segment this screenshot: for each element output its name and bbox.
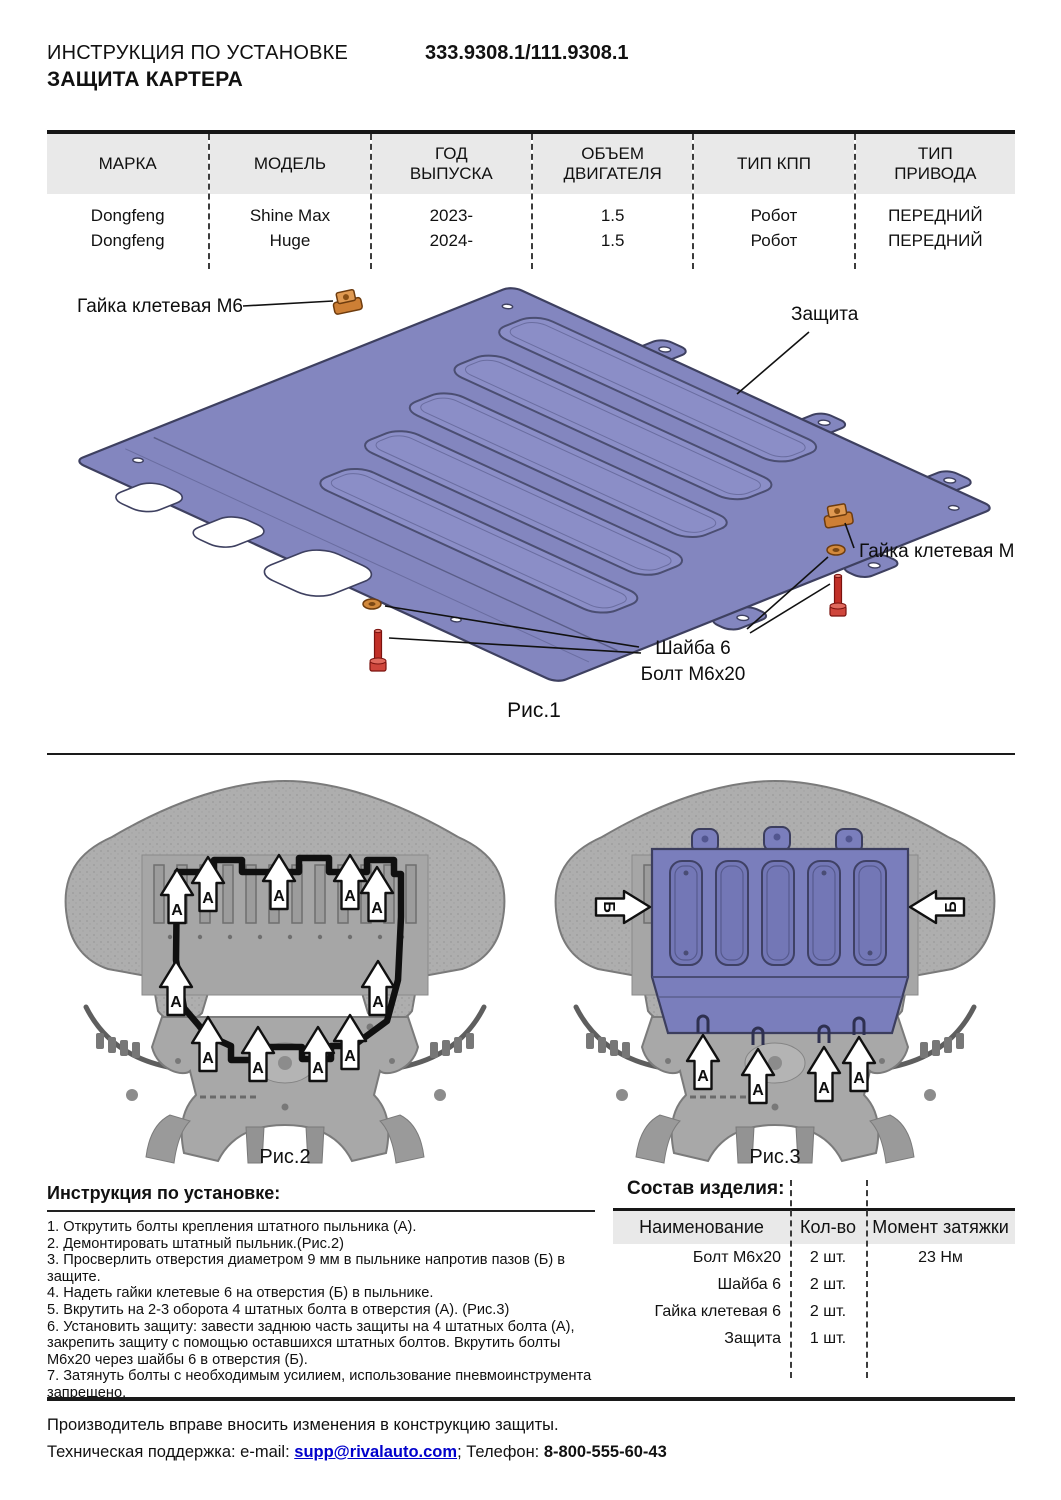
doc-type-title: ИНСТРУКЦИЯ ПО УСТАНОВКЕ bbox=[47, 42, 348, 65]
bolt-icon bbox=[830, 574, 846, 616]
table-row: Шайба 6 2 шт. bbox=[613, 1271, 1015, 1298]
column-divider bbox=[866, 1180, 868, 1378]
label-clip-nut-right: Гайка клетевая М6 bbox=[859, 541, 1015, 562]
instruction-step: 3. Просверлить отверстия диаметром 9 мм … bbox=[47, 1252, 595, 1285]
table-cell: Шайба 6 bbox=[613, 1271, 790, 1298]
instruction-document: ИНСТРУКЦИЯ ПО УСТАНОВКЕ ЗАЩИТА КАРТЕРА 3… bbox=[0, 0, 1061, 1500]
components-header-row: Наименование Кол-во Момент затяжки bbox=[613, 1211, 1015, 1244]
table-cell bbox=[866, 1298, 1015, 1325]
table-cell: Гайка клетевая 6 bbox=[613, 1298, 790, 1325]
header: ИНСТРУКЦИЯ ПО УСТАНОВКЕ ЗАЩИТА КАРТЕРА bbox=[47, 42, 348, 92]
svg-text:А: А bbox=[372, 994, 384, 1011]
instructions-title: Инструкция по установке: bbox=[47, 1183, 595, 1204]
instruction-steps: 1. Открутить болты крепления штатного пы… bbox=[47, 1219, 595, 1402]
label-clip-nut-top: Гайка клетевая М6 bbox=[77, 296, 243, 317]
column-divider bbox=[790, 1180, 792, 1378]
table-row: Защита 1 шт. bbox=[613, 1325, 1015, 1352]
instruction-step: 4. Надеть гайки клетевые 6 на отверстия … bbox=[47, 1285, 595, 1302]
table-cell: 1.5 bbox=[533, 203, 692, 228]
header-label: ОБЪЕМ bbox=[581, 144, 644, 164]
column-header: ГОДВЫПУСКА bbox=[372, 134, 531, 194]
table-cell: 2024- bbox=[372, 228, 531, 253]
column-header: МОДЕЛЬ bbox=[210, 134, 369, 194]
table-cell: 2023- bbox=[372, 203, 531, 228]
phone-label: Телефон: bbox=[466, 1443, 544, 1461]
column-header: ОБЪЕМДВИГАТЕЛЯ bbox=[533, 134, 692, 194]
table-cell: Dongfeng bbox=[47, 203, 208, 228]
header-label: ПРИВОДА bbox=[894, 164, 976, 184]
installation-instructions: Инструкция по установке: 1. Открутить бо… bbox=[47, 1183, 595, 1402]
table-cell: Робот bbox=[694, 203, 853, 228]
fitment-col-engine: ОБЪЕМДВИГАТЕЛЯ 1.51.5 bbox=[531, 134, 692, 269]
svg-text:А: А bbox=[171, 902, 183, 919]
support-phone: 8-800-555-60-43 bbox=[544, 1443, 667, 1461]
label-shield: Защита bbox=[791, 304, 859, 325]
title-underline bbox=[47, 1210, 595, 1212]
washer-icon bbox=[827, 545, 845, 555]
instruction-step: 1. Открутить болты крепления штатного пы… bbox=[47, 1219, 595, 1236]
footer: Производитель вправе вносить изменения в… bbox=[47, 1412, 1015, 1466]
installed-shield bbox=[652, 827, 908, 1045]
svg-text:А: А bbox=[752, 1082, 764, 1099]
table-cell: Dongfeng bbox=[47, 228, 208, 253]
label-bolt: Болт М6х20 bbox=[641, 664, 746, 685]
shield-plate bbox=[47, 278, 1015, 706]
support-email-link[interactable]: supp@rivalauto.com bbox=[294, 1443, 457, 1461]
table-cell bbox=[866, 1271, 1015, 1298]
column-header: Кол-во bbox=[790, 1217, 866, 1238]
part-number: 333.9308.1/111.9308.1 bbox=[425, 42, 629, 65]
table-cell: 23 Нм bbox=[866, 1244, 1015, 1271]
fitment-col-model: МОДЕЛЬ Shine MaxHuge bbox=[208, 134, 369, 269]
table-row: Болт М6х20 2 шт. 23 Нм bbox=[613, 1244, 1015, 1271]
svg-text:А: А bbox=[202, 1050, 214, 1067]
table-cell bbox=[866, 1325, 1015, 1352]
column-header: ТИППРИВОДА bbox=[856, 134, 1015, 194]
fig2-caption: Рис.2 bbox=[50, 1146, 520, 1169]
table-cell: 1.5 bbox=[533, 228, 692, 253]
instruction-step: 2. Демонтировать штатный пыльник.(Рис.2) bbox=[47, 1236, 595, 1253]
fitment-col-drive: ТИППРИВОДА ПЕРЕДНИЙПЕРЕДНИЙ bbox=[854, 134, 1015, 269]
product-title: ЗАЩИТА КАРТЕРА bbox=[47, 68, 348, 92]
column-header: ТИП КПП bbox=[694, 134, 853, 194]
header-label: ТИП КПП bbox=[737, 154, 811, 174]
components-title: Состав изделия: bbox=[627, 1178, 1015, 1200]
clip-nut-icon bbox=[331, 288, 363, 314]
svg-text:А: А bbox=[273, 888, 285, 905]
table-cell: 2 шт. bbox=[790, 1244, 866, 1271]
fitment-col-brand: МАРКА DongfengDongfeng bbox=[47, 134, 208, 269]
bolt-icon bbox=[370, 629, 386, 671]
svg-text:А: А bbox=[170, 994, 182, 1011]
table-cell: 2 шт. bbox=[790, 1271, 866, 1298]
header-label: ТИП bbox=[918, 144, 953, 164]
column-header: МАРКА bbox=[47, 134, 208, 194]
underbody-photo-base bbox=[66, 781, 505, 1163]
fig3-caption: Рис.3 bbox=[540, 1146, 1010, 1169]
svg-text:А: А bbox=[344, 1048, 356, 1065]
table-cell: 2 шт. bbox=[790, 1298, 866, 1325]
support-line: Техническая поддержка: e-mail: supp@riva… bbox=[47, 1439, 1015, 1466]
svg-text:А: А bbox=[344, 888, 356, 905]
svg-text:А: А bbox=[371, 900, 383, 917]
column-header: Момент затяжки bbox=[866, 1217, 1015, 1238]
fig1-caption: Рис.1 bbox=[507, 699, 561, 722]
svg-text:Б: Б bbox=[600, 901, 617, 913]
fig3-underbody-photo: Б Б А А А А bbox=[540, 765, 1010, 1165]
washer-icon bbox=[363, 599, 381, 609]
header-label: МОДЕЛЬ bbox=[254, 154, 326, 174]
fitment-table: МАРКА DongfengDongfeng МОДЕЛЬ Shine MaxH… bbox=[47, 130, 1015, 269]
svg-text:А: А bbox=[202, 890, 214, 907]
instruction-step: 6. Установить защиту: завести заднюю час… bbox=[47, 1319, 595, 1369]
header-label: ВЫПУСКА bbox=[410, 164, 493, 184]
components-table: Наименование Кол-во Момент затяжки Болт … bbox=[613, 1208, 1015, 1352]
table-cell: 1 шт. bbox=[790, 1325, 866, 1352]
fitment-col-year: ГОДВЫПУСКА 2023-2024- bbox=[370, 134, 531, 269]
fig1-shield-illustration: Гайка клетевая М6 Защита Гайка клетевая … bbox=[47, 276, 1015, 728]
label-washer: Шайба 6 bbox=[655, 638, 730, 659]
svg-text:А: А bbox=[252, 1060, 264, 1077]
footer-divider bbox=[47, 1397, 1015, 1401]
instruction-step: 5. Вкрутить на 2-3 оборота 4 штатных бол… bbox=[47, 1302, 595, 1319]
components-section: Состав изделия: Наименование Кол-во Моме… bbox=[613, 1178, 1015, 1352]
header-label: ДВИГАТЕЛЯ bbox=[564, 164, 662, 184]
table-cell: ПЕРЕДНИЙ bbox=[856, 203, 1015, 228]
svg-text:Б: Б bbox=[943, 901, 960, 913]
column-header: Наименование bbox=[613, 1217, 790, 1238]
support-label: Техническая поддержка: e-mail: bbox=[47, 1443, 294, 1461]
header-label: МАРКА bbox=[99, 154, 157, 174]
separator: ; bbox=[457, 1443, 466, 1461]
svg-text:А: А bbox=[818, 1080, 830, 1097]
fig2-underbody-photo: А А А А А А А А А А А bbox=[50, 765, 520, 1165]
svg-text:А: А bbox=[853, 1070, 865, 1087]
table-cell: Робот bbox=[694, 228, 853, 253]
svg-text:А: А bbox=[697, 1068, 709, 1085]
fitment-col-gearbox: ТИП КПП РоботРобот bbox=[692, 134, 853, 269]
table-cell: ПЕРЕДНИЙ bbox=[856, 228, 1015, 253]
table-cell: Защита bbox=[613, 1325, 790, 1352]
table-cell: Huge bbox=[210, 228, 369, 253]
section-divider bbox=[47, 753, 1015, 755]
table-cell: Shine Max bbox=[210, 203, 369, 228]
table-row: Гайка клетевая 6 2 шт. bbox=[613, 1298, 1015, 1325]
table-cell: Болт М6х20 bbox=[613, 1244, 790, 1271]
svg-text:А: А bbox=[312, 1060, 324, 1077]
manufacturer-note: Производитель вправе вносить изменения в… bbox=[47, 1412, 1015, 1439]
header-label: ГОД bbox=[435, 144, 468, 164]
